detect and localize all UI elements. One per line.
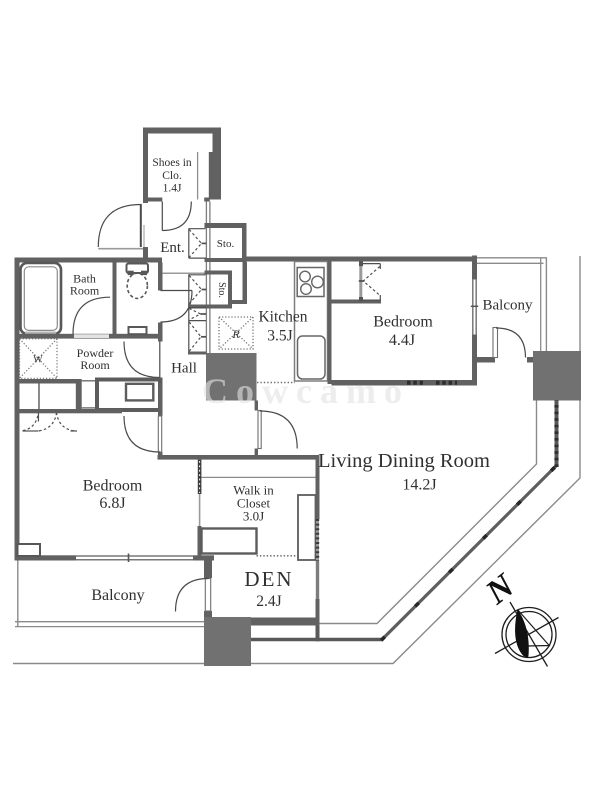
svg-text:W: W [33, 355, 43, 366]
svg-text:Ent.: Ent. [160, 240, 185, 256]
svg-text:Room: Room [70, 284, 100, 298]
svg-text:DEN: DEN [244, 567, 293, 591]
svg-text:Room: Room [80, 358, 110, 372]
svg-text:Bedroom: Bedroom [83, 478, 143, 495]
svg-text:Kitchen: Kitchen [258, 309, 307, 326]
svg-text:3.5J: 3.5J [267, 328, 292, 345]
svg-text:2.4J: 2.4J [256, 593, 281, 610]
svg-text:Clo.: Clo. [162, 170, 182, 182]
svg-text:3.0J: 3.0J [243, 509, 264, 524]
svg-text:4.4J: 4.4J [389, 332, 415, 349]
svg-text:N: N [478, 566, 522, 612]
svg-text:Shoes in: Shoes in [152, 157, 192, 169]
svg-text:Balcony: Balcony [483, 298, 533, 314]
svg-text:Sto.: Sto. [217, 238, 235, 250]
svg-text:1.4J: 1.4J [163, 183, 182, 195]
svg-text:Bedroom: Bedroom [373, 314, 433, 331]
svg-text:Sto.: Sto. [216, 282, 227, 298]
svg-text:Hall: Hall [171, 361, 197, 377]
svg-text:6.8J: 6.8J [99, 495, 125, 512]
svg-text:Living Dining Room: Living Dining Room [318, 450, 490, 472]
svg-text:14.2J: 14.2J [402, 477, 436, 494]
svg-text:Balcony: Balcony [91, 587, 144, 604]
svg-text:R: R [231, 327, 240, 341]
